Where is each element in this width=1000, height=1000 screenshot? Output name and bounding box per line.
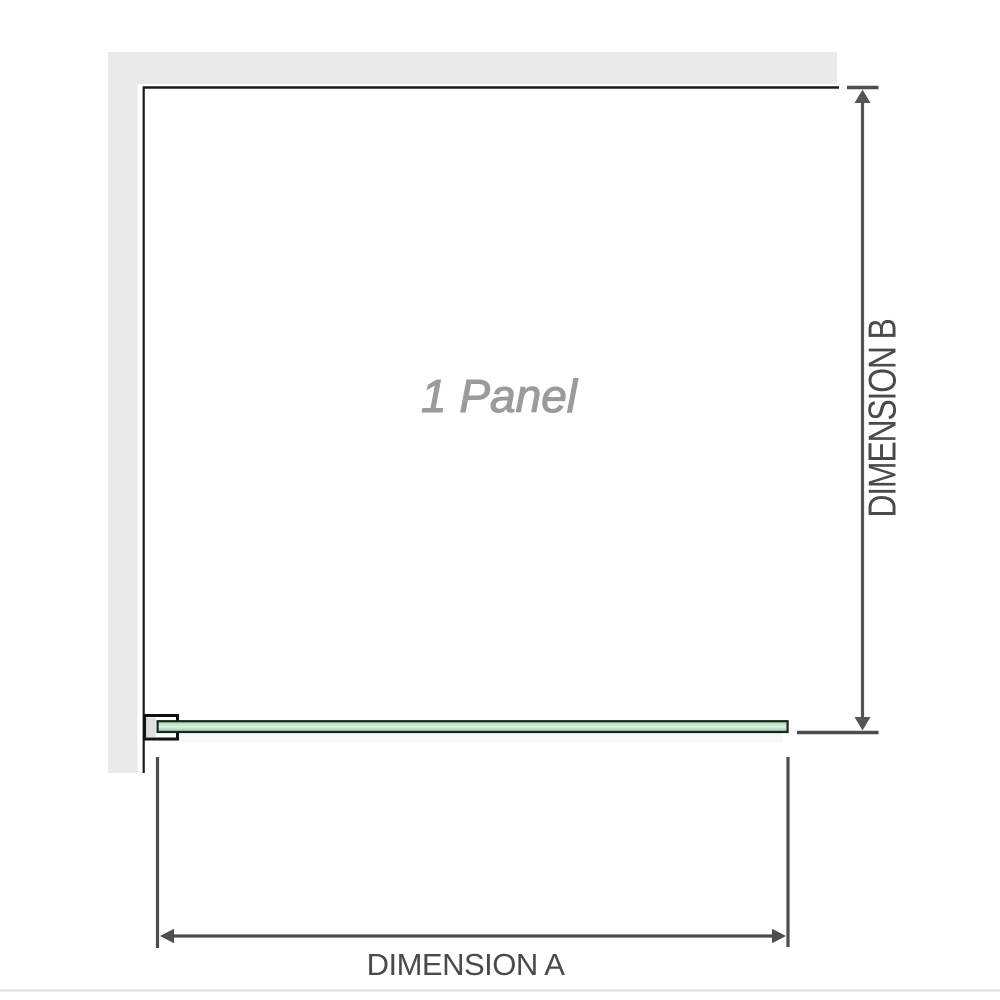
- svg-text:DIMENSION B: DIMENSION B: [861, 319, 905, 517]
- svg-text:DIMENSION A: DIMENSION A: [367, 947, 566, 982]
- svg-text:1 Panel: 1 Panel: [421, 370, 579, 422]
